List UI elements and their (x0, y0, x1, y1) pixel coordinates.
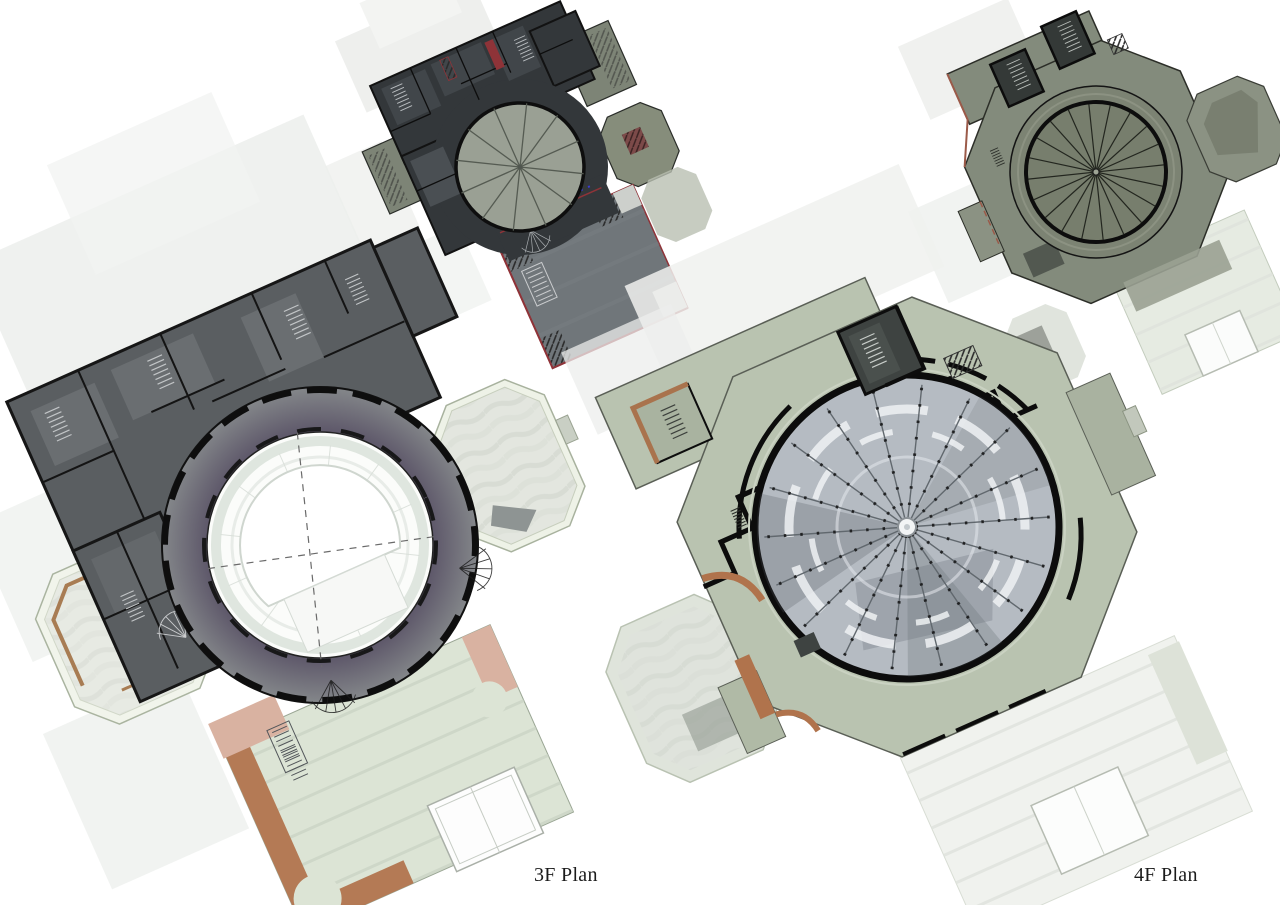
architectural-plan-sheet: 3F Plan 4F Plan (0, 0, 1280, 905)
plans-drawing (0, 0, 1280, 905)
caption-4f-plan: 4F Plan (1134, 864, 1198, 887)
caption-3f-plan: 3F Plan (534, 864, 598, 887)
